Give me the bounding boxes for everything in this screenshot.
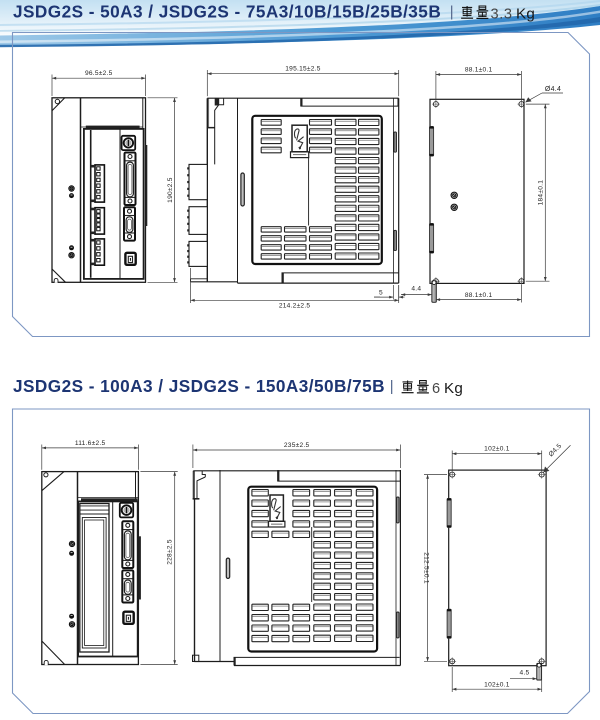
svg-text:212.5±0.1: 212.5±0.1 — [423, 552, 430, 584]
svg-text:190±2.5: 190±2.5 — [167, 177, 174, 203]
svg-text:Kg: Kg — [516, 5, 535, 22]
svg-text:195.15±2.5: 195.15±2.5 — [285, 66, 321, 73]
svg-text:214.2±2.5: 214.2±2.5 — [279, 303, 311, 310]
svg-text:4.4: 4.4 — [411, 285, 421, 292]
svg-text:235±2.5: 235±2.5 — [284, 442, 310, 449]
svg-text:6: 6 — [432, 381, 441, 397]
svg-text:184±0.1: 184±0.1 — [538, 180, 545, 206]
svg-text:102±0.1: 102±0.1 — [484, 446, 510, 453]
svg-text:Ø4.4: Ø4.4 — [545, 86, 561, 93]
svg-text:JSDG2S - 50A3 / JSDG2S - 75A3/: JSDG2S - 50A3 / JSDG2S - 75A3/10B/15B/25… — [13, 2, 441, 22]
svg-text:4.5: 4.5 — [520, 670, 530, 677]
svg-text:111.6±2.5: 111.6±2.5 — [75, 440, 106, 447]
svg-text:Kg: Kg — [444, 380, 463, 397]
svg-text:228±2.5: 228±2.5 — [166, 539, 173, 565]
svg-text:JSDG2S - 100A3 / JSDG2S - 150A: JSDG2S - 100A3 / JSDG2S - 150A3/50B/75B — [13, 376, 385, 396]
svg-text:5: 5 — [379, 290, 383, 297]
svg-text:88.1±0.1: 88.1±0.1 — [465, 67, 493, 74]
svg-text:3.3: 3.3 — [491, 6, 513, 22]
svg-text:96.5±2.5: 96.5±2.5 — [85, 70, 113, 77]
svg-text:102±0.1: 102±0.1 — [484, 681, 510, 688]
svg-text:88.1±0.1: 88.1±0.1 — [465, 292, 493, 299]
